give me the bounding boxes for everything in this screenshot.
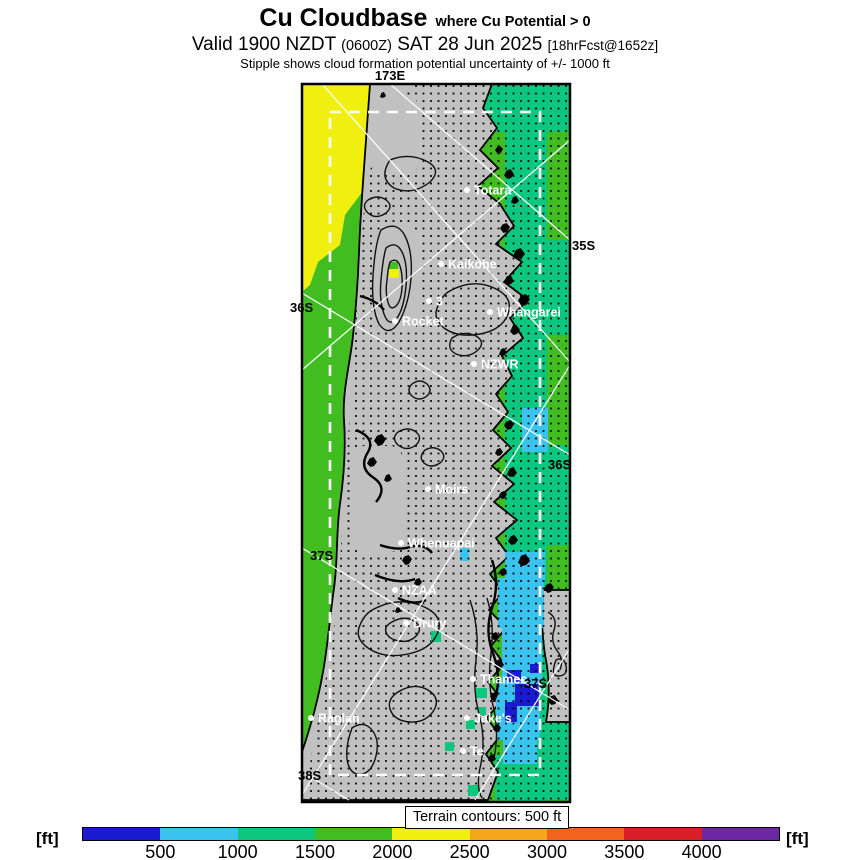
graticule-label: 35S (572, 238, 595, 253)
place-marker (460, 748, 466, 754)
place-label: NZAA (402, 584, 437, 598)
colorbar-segment (392, 828, 469, 840)
colorbar-unit-left: [ft] (36, 829, 59, 849)
colorbar-tick-label: 3000 (527, 842, 567, 860)
place-marker (308, 715, 314, 721)
place-label: Te (470, 745, 484, 759)
place-marker (470, 676, 476, 682)
place-marker (426, 298, 432, 304)
colorbar-tick-label: 4000 (682, 842, 722, 860)
place-marker (425, 486, 431, 492)
graticule-label: 173E (375, 68, 406, 83)
colorbar-tick-label: 3500 (604, 842, 644, 860)
graticule-label: 36S (290, 300, 313, 315)
place-label: 3 (436, 295, 443, 309)
place-label: Jake's (474, 712, 512, 726)
graticule-label: 37S (310, 548, 333, 563)
place-marker (403, 620, 409, 626)
place-marker (438, 261, 444, 267)
graticule-label: 38S (298, 768, 321, 783)
place-label: Drury (413, 617, 446, 631)
colorbar-segment (547, 828, 624, 840)
place-marker (464, 187, 470, 193)
place-marker (487, 309, 493, 315)
colorbar-tick-label: 2000 (372, 842, 412, 860)
forecast-map: TotaraKaikohe3RocketWhangareiNZWRMoirsWh… (0, 0, 850, 860)
forecast-page: Cu Cloudbasewhere Cu Potential > 0 Valid… (0, 0, 850, 860)
graticule-label: 36S (548, 457, 571, 472)
colorbar-segment (160, 828, 237, 840)
place-marker (392, 587, 398, 593)
colorbar-segment (624, 828, 701, 840)
colorbar-tick-label: 500 (145, 842, 175, 860)
cloudbase-colorbar: 5001000150020002500300035004000 (82, 827, 780, 841)
terrain-contours-note: Terrain contours: 500 ft (405, 806, 569, 829)
place-label: Thames (480, 673, 527, 687)
place-label: Rocket (402, 315, 445, 329)
place-label: Whangarei (497, 306, 561, 320)
place-label: Moirs (435, 483, 468, 497)
place-marker (398, 540, 404, 546)
place-label: Whenuapai (408, 537, 475, 551)
place-marker (464, 715, 470, 721)
place-label: NZWR (481, 358, 519, 372)
place-label: Kaikohe (448, 258, 497, 272)
colorbar-segment (702, 828, 779, 840)
place-label: Totara (474, 184, 512, 198)
colorbar-tick-label: 1000 (218, 842, 258, 860)
colorbar-tick-label: 1500 (295, 842, 335, 860)
colorbar-segment (238, 828, 315, 840)
colorbar-unit-right: [ft] (786, 829, 809, 849)
colorbar-segment (315, 828, 392, 840)
colorbar-segment (83, 828, 160, 840)
graticule-label: 37S (524, 676, 547, 691)
place-marker (471, 361, 477, 367)
place-label: Raglan (318, 712, 360, 726)
colorbar-tick-label: 2500 (450, 842, 490, 860)
place-marker (392, 318, 398, 324)
colorbar-segment (470, 828, 547, 840)
